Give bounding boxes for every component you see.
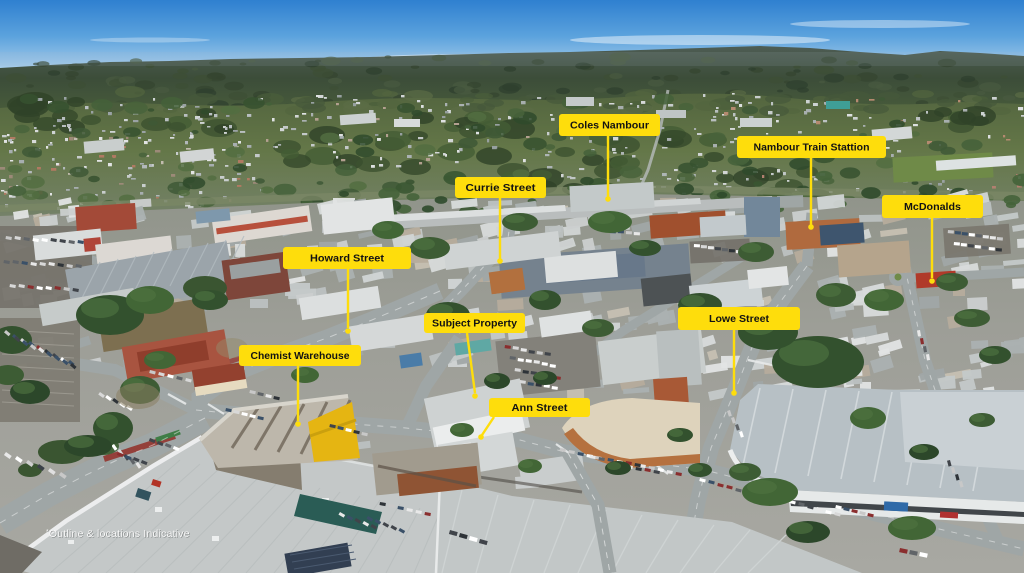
- svg-text:Coles Nambour: Coles Nambour: [570, 120, 649, 132]
- svg-text:Nambour Train Stattion: Nambour Train Stattion: [754, 142, 870, 154]
- svg-text:Subject Property: Subject Property: [432, 318, 517, 330]
- svg-text:Lowe Street: Lowe Street: [709, 313, 770, 325]
- svg-text:Ann Street: Ann Street: [512, 402, 569, 414]
- svg-text:*Outline & locations Indicati: *Outline & locations Indicative: [46, 528, 190, 540]
- svg-text:Howard Street: Howard Street: [310, 253, 385, 265]
- svg-text:McDonalds: McDonalds: [904, 201, 961, 213]
- svg-text:Currie Street: Currie Street: [466, 182, 537, 194]
- svg-text:Chemist Warehouse: Chemist Warehouse: [251, 350, 350, 362]
